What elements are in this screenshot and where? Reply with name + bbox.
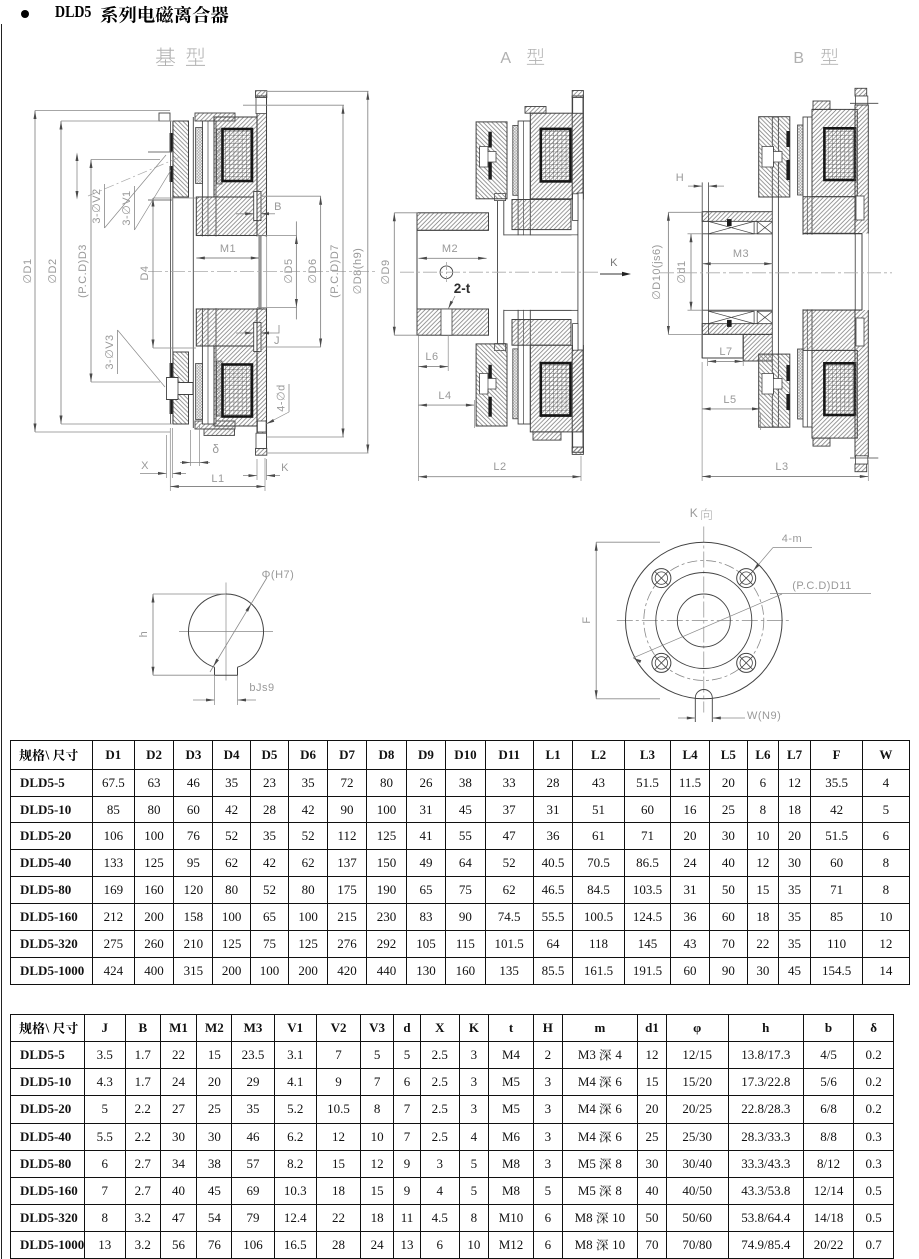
svg-text:B: B — [274, 201, 282, 213]
svg-text:L1: L1 — [211, 473, 224, 485]
svg-text:Φ(H7): Φ(H7) — [262, 569, 295, 581]
svg-text:\: \ — [45, 1021, 50, 1036]
svg-text:L6: L6 — [425, 351, 438, 363]
svg-text:K: K — [610, 257, 618, 269]
svg-text:h: h — [138, 631, 150, 638]
svg-text:F: F — [581, 616, 593, 623]
svg-text:K: K — [281, 462, 289, 474]
svg-text:3-∅V1: 3-∅V1 — [121, 190, 133, 225]
svg-text:\: \ — [45, 747, 50, 762]
svg-text:J: J — [274, 335, 280, 347]
svg-text:L7: L7 — [719, 346, 732, 358]
svg-text:M1: M1 — [220, 243, 236, 255]
svg-text:3-∅V3: 3-∅V3 — [104, 334, 116, 369]
svg-text:H: H — [676, 172, 684, 184]
svg-text:∅d1: ∅d1 — [676, 260, 688, 283]
svg-text:4-m: 4-m — [782, 533, 802, 545]
svg-text:M2: M2 — [442, 243, 458, 255]
svg-text:∅D9: ∅D9 — [380, 259, 392, 284]
svg-text:∅D6: ∅D6 — [307, 258, 319, 283]
svg-text:4-∅d: 4-∅d — [276, 384, 288, 411]
svg-text:(P.C.D)D3: (P.C.D)D3 — [77, 244, 89, 298]
svg-text:2-t: 2-t — [454, 281, 471, 296]
svg-text:L4: L4 — [438, 390, 451, 402]
svg-text:(P.C.D)D11: (P.C.D)D11 — [792, 580, 852, 592]
svg-text:bJs9: bJs9 — [249, 682, 274, 694]
svg-text:L5: L5 — [723, 394, 736, 406]
svg-text:∅D10(js6): ∅D10(js6) — [651, 244, 663, 300]
svg-text:D4: D4 — [139, 265, 151, 280]
svg-text:∅D1: ∅D1 — [22, 258, 34, 283]
svg-text:W(N9): W(N9) — [747, 710, 781, 722]
svg-text:∅D2: ∅D2 — [47, 258, 59, 283]
svg-text:L3: L3 — [775, 461, 788, 473]
svg-text:M3: M3 — [733, 248, 749, 260]
svg-text:B: B — [793, 50, 804, 67]
svg-text:A: A — [500, 50, 511, 67]
svg-text:δ: δ — [212, 442, 219, 456]
svg-text:X: X — [141, 460, 149, 472]
svg-text:L2: L2 — [493, 461, 506, 473]
svg-text:(P.C.D)D7: (P.C.D)D7 — [329, 244, 341, 298]
svg-text:∅D8(h9): ∅D8(h9) — [352, 248, 364, 295]
svg-text:3-∅V2: 3-∅V2 — [91, 188, 103, 223]
svg-text:K: K — [690, 506, 699, 520]
svg-text:∅D5: ∅D5 — [283, 258, 295, 283]
